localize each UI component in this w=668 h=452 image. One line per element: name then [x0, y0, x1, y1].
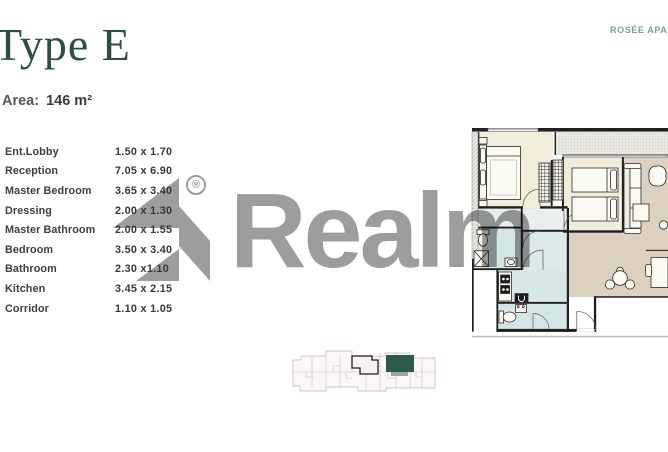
key-plan [288, 347, 442, 397]
floor-plan [463, 115, 668, 340]
room-dims: 3.65 x 3.40 [115, 185, 172, 197]
dressing-floor [478, 208, 522, 228]
corridor-floor [522, 208, 568, 231]
project-name-label: ROSÉE APA [610, 25, 667, 35]
table-row: Reception7.05 x 6.90 [5, 162, 190, 182]
room-dims: 2.30 x1.10 [115, 263, 169, 275]
room-dims: 2.00 x 1.30 [115, 205, 172, 217]
page-title: Type E [0, 18, 131, 71]
room-name: Reception [5, 165, 115, 177]
room-dims: 3.45 x 2.15 [115, 283, 172, 295]
balcony-floor [555, 132, 668, 155]
sofa [624, 164, 641, 234]
table-row: Dressing2.00 x 1.30 [5, 201, 190, 221]
coffee-table [633, 204, 649, 221]
area-value: 146 m² [46, 93, 92, 109]
armchair [649, 166, 666, 186]
area-line: Area:146 m² [2, 93, 92, 109]
room-dimension-list: Ent.Lobby1.50 x 1.70 Reception7.05 x 6.9… [5, 142, 190, 318]
wardrobe [553, 160, 563, 200]
hall-floor [522, 231, 568, 270]
table-row: Bathroom2.30 x1.10 [5, 260, 190, 280]
table-row: Kitchen3.45 x 2.15 [5, 279, 190, 299]
room-name: Ent.Lobby [5, 146, 115, 158]
chair [659, 221, 667, 229]
entry-notch [595, 297, 668, 340]
table-row: Master Bedroom3.65 x 3.40 [5, 181, 190, 201]
master-bed [479, 138, 521, 207]
exterior-wall-hatch [472, 132, 478, 259]
room-dims: 1.10 x 1.05 [115, 303, 172, 315]
room-dims: 7.05 x 6.90 [115, 165, 172, 177]
room-name: Corridor [5, 303, 115, 315]
floor-plan-sheet: { "header": { "title": "Type E", "area_l… [0, 0, 668, 452]
table-row: Ent.Lobby1.50 x 1.70 [5, 142, 190, 162]
room-dims: 3.50 x 3.40 [115, 244, 172, 256]
room-name: Bathroom [5, 263, 115, 275]
table-row: Bedroom3.50 x 3.40 [5, 240, 190, 260]
area-label: Area: [2, 93, 39, 109]
room-dims: 2.00 x 1.55 [115, 224, 172, 236]
room-name: Bedroom [5, 244, 115, 256]
wardrobe [539, 163, 550, 202]
room-name: Master Bedroom [5, 185, 115, 197]
room-name: Kitchen [5, 283, 115, 295]
table-row: Corridor1.10 x 1.05 [5, 299, 190, 319]
room-dims: 1.50 x 1.70 [115, 146, 172, 158]
room-name: Master Bathroom [5, 224, 115, 236]
table-row: Master Bathroom2.00 x 1.55 [5, 220, 190, 240]
room-name: Dressing [5, 205, 115, 217]
